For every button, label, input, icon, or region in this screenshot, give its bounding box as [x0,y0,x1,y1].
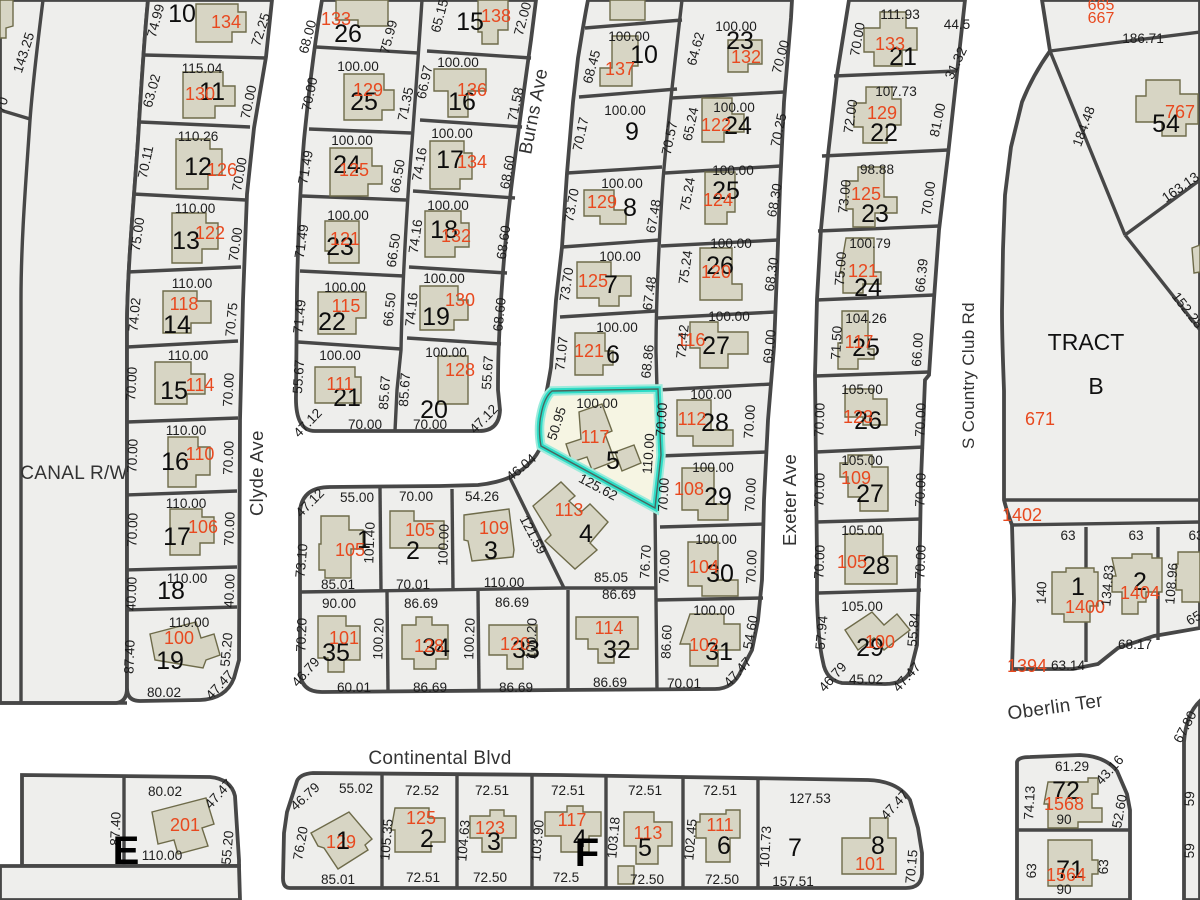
svg-text:7: 7 [788,834,802,862]
svg-text:125: 125 [578,271,608,291]
svg-text:70.00: 70.00 [221,511,237,546]
svg-text:100.00: 100.00 [435,523,451,566]
svg-text:29: 29 [704,483,732,511]
svg-text:100.00: 100.00 [601,176,643,191]
svg-text:110.00: 110.00 [172,276,213,291]
svg-text:70.00: 70.00 [742,477,759,512]
svg-text:136: 136 [457,80,487,100]
svg-text:60.01: 60.01 [337,680,371,695]
svg-text:104.26: 104.26 [845,311,887,326]
svg-text:70.00: 70.00 [912,402,928,437]
svg-text:70.75: 70.75 [223,302,241,337]
svg-text:45.02: 45.02 [849,672,883,687]
svg-text:55.67: 55.67 [479,355,496,390]
svg-text:109: 109 [841,468,871,488]
svg-text:113: 113 [555,500,584,520]
svg-text:70.00: 70.00 [413,417,447,432]
svg-text:59: 59 [1182,791,1198,807]
svg-text:132: 132 [441,226,471,246]
svg-text:10: 10 [168,0,196,28]
svg-text:128: 128 [414,636,444,656]
svg-text:70.00: 70.00 [124,438,140,473]
svg-text:70.00: 70.00 [811,472,827,507]
svg-text:70.00: 70.00 [655,477,672,512]
svg-text:100.00: 100.00 [599,249,641,264]
svg-text:22: 22 [870,119,898,147]
svg-text:118: 118 [170,294,199,314]
svg-text:100.00: 100.00 [425,345,467,360]
svg-text:73.10: 73.10 [293,543,311,579]
svg-text:107.73: 107.73 [875,84,917,99]
svg-text:1394: 1394 [1007,656,1047,676]
svg-text:111.93: 111.93 [880,7,920,22]
svg-text:114: 114 [595,618,624,638]
svg-text:4: 4 [579,520,593,548]
svg-text:Exeter Ave: Exeter Ave [779,454,800,546]
svg-text:117: 117 [581,427,610,447]
svg-text:70.00: 70.00 [912,472,928,507]
svg-text:106: 106 [188,517,218,537]
svg-text:70.01: 70.01 [667,676,701,691]
svg-text:5: 5 [606,447,620,475]
svg-text:128: 128 [445,360,475,380]
svg-text:100.20: 100.20 [370,617,386,660]
svg-text:114: 114 [186,375,215,395]
svg-text:134: 134 [457,152,487,172]
svg-text:55.67: 55.67 [290,359,307,394]
svg-text:74.13: 74.13 [1021,785,1038,820]
svg-text:121: 121 [574,341,604,361]
svg-text:63: 63 [1024,863,1040,879]
svg-text:133: 133 [875,34,905,54]
svg-text:76.70: 76.70 [637,544,654,579]
svg-text:70.00: 70.00 [220,372,237,407]
svg-text:129: 129 [587,192,617,212]
svg-text:105.00: 105.00 [841,599,883,614]
svg-text:55.20: 55.20 [218,632,236,668]
svg-text:117: 117 [845,332,874,352]
svg-text:105: 105 [335,540,365,560]
svg-text:100.00: 100.00 [324,280,366,295]
svg-text:3: 3 [484,537,498,565]
svg-text:110.00: 110.00 [166,496,207,511]
svg-text:100.00: 100.00 [437,55,479,70]
svg-text:57.94: 57.94 [813,615,831,651]
svg-text:40.00: 40.00 [123,576,139,611]
svg-text:72.50: 72.50 [473,870,507,885]
svg-text:70.00: 70.00 [123,366,140,401]
svg-text:61.29: 61.29 [1055,759,1089,774]
svg-text:86.69: 86.69 [602,587,636,602]
svg-text:70.00: 70.00 [399,489,433,504]
svg-text:100.00: 100.00 [427,198,469,213]
svg-text:111: 111 [326,374,353,394]
svg-text:110.00: 110.00 [484,575,525,590]
svg-text:112: 112 [678,409,707,429]
svg-text:3: 3 [487,828,501,856]
svg-text:14: 14 [163,311,191,339]
svg-text:27: 27 [702,332,730,360]
svg-text:1402: 1402 [1002,505,1042,525]
svg-text:70.00: 70.00 [124,512,140,547]
svg-text:102: 102 [689,635,719,655]
svg-text:70.00: 70.00 [811,544,827,579]
svg-text:32: 32 [603,636,631,664]
svg-text:110.00: 110.00 [142,848,183,863]
svg-text:8: 8 [623,194,637,222]
svg-text:108: 108 [674,479,704,499]
svg-text:1568: 1568 [1044,794,1084,814]
svg-text:133: 133 [321,9,351,29]
svg-text:100.00: 100.00 [604,103,646,118]
svg-text:110.00: 110.00 [640,432,658,474]
svg-text:40.00: 40.00 [221,573,237,608]
svg-text:18: 18 [157,577,185,605]
svg-text:70.00: 70.00 [656,549,672,584]
svg-text:667: 667 [1088,10,1115,27]
svg-text:85.01: 85.01 [321,577,355,592]
svg-text:9: 9 [625,118,639,146]
svg-text:120: 120 [701,262,731,282]
svg-text:63: 63 [1060,528,1075,543]
svg-text:70.00: 70.00 [220,440,236,475]
svg-text:1404: 1404 [1120,583,1160,603]
svg-text:63.14: 63.14 [1051,658,1085,673]
svg-text:1: 1 [336,827,350,855]
svg-text:86.69: 86.69 [404,596,438,611]
svg-text:15: 15 [456,8,484,36]
svg-text:100.00: 100.00 [331,133,373,148]
svg-text:CANAL R/W: CANAL R/W [20,463,128,484]
svg-text:E: E [113,829,140,873]
svg-text:70.00: 70.00 [348,417,382,432]
svg-text:100.00: 100.00 [576,396,618,411]
svg-text:100.00: 100.00 [596,320,638,335]
svg-text:100.00: 100.00 [431,126,473,141]
svg-text:55.84: 55.84 [905,612,923,648]
svg-text:100.00: 100.00 [327,208,369,223]
svg-text:201: 201 [170,815,200,835]
svg-text:98.88: 98.88 [860,162,894,177]
svg-text:140: 140 [1034,581,1050,605]
svg-text:124: 124 [703,190,733,210]
svg-text:100: 100 [865,632,895,652]
svg-text:F: F [575,831,599,875]
svg-text:138: 138 [481,6,511,26]
svg-text:B: B [1088,373,1103,399]
svg-text:72.51: 72.51 [628,783,662,798]
svg-text:86.69: 86.69 [495,595,529,610]
svg-text:129: 129 [867,103,897,123]
svg-text:72.51: 72.51 [406,870,440,885]
svg-text:90.00: 90.00 [322,596,356,611]
svg-text:101.73: 101.73 [757,826,774,868]
svg-text:100.00: 100.00 [423,271,465,286]
svg-text:70.00: 70.00 [912,544,928,579]
svg-text:85.05: 85.05 [594,570,628,585]
svg-text:70.01: 70.01 [396,577,430,592]
svg-text:2: 2 [406,537,420,565]
svg-text:110.00: 110.00 [166,423,207,438]
svg-text:85.67: 85.67 [396,372,413,407]
svg-text:130: 130 [445,290,475,310]
svg-text:70.00: 70.00 [743,549,759,584]
svg-text:80.02: 80.02 [148,784,182,799]
svg-text:55.20: 55.20 [219,830,237,866]
svg-text:101.40: 101.40 [361,521,377,564]
svg-text:100.20: 100.20 [461,617,477,660]
svg-text:55.00: 55.00 [340,490,374,505]
svg-text:55.02: 55.02 [339,781,373,796]
svg-text:767: 767 [1165,102,1195,122]
svg-text:105.00: 105.00 [841,523,883,538]
svg-text:86.69: 86.69 [593,675,627,690]
svg-text:80.02: 80.02 [147,685,181,700]
svg-text:72.51: 72.51 [551,783,585,798]
svg-text:105: 105 [405,520,435,540]
svg-text:100.20: 100.20 [523,617,539,660]
svg-text:23: 23 [861,200,889,228]
svg-text:123: 123 [843,407,873,427]
svg-text:121: 121 [848,261,878,281]
svg-text:19: 19 [156,647,184,675]
svg-text:Clyde Ave: Clyde Ave [246,430,267,516]
svg-text:100.00: 100.00 [690,387,732,402]
svg-text:5: 5 [638,834,652,862]
svg-text:72.50: 72.50 [630,872,664,887]
svg-text:122: 122 [701,115,731,135]
svg-text:105: 105 [837,552,867,572]
svg-text:85.67: 85.67 [376,375,393,410]
svg-text:100: 100 [164,628,194,648]
svg-text:44.5: 44.5 [944,17,970,32]
svg-text:110.26: 110.26 [178,129,219,144]
svg-text:66.00: 66.00 [909,332,926,367]
svg-text:100.00: 100.00 [695,532,737,547]
svg-text:70.00: 70.00 [653,402,670,437]
svg-text:72.51: 72.51 [475,783,509,798]
svg-text:87.40: 87.40 [121,639,137,674]
svg-text:671: 671 [1025,409,1055,429]
svg-text:70.20: 70.20 [293,617,309,652]
svg-text:109: 109 [479,518,509,538]
svg-text:6: 6 [606,341,620,369]
svg-text:132: 132 [731,47,761,67]
svg-text:130: 130 [185,84,215,104]
svg-text:72.50: 72.50 [705,872,739,887]
svg-text:59: 59 [1182,843,1198,859]
svg-text:S Country Club Rd: S Country Club Rd [959,302,978,449]
svg-text:17: 17 [163,523,191,551]
svg-text:121: 121 [330,229,360,249]
svg-text:127.53: 127.53 [789,791,831,806]
svg-text:134: 134 [211,12,241,32]
svg-text:129: 129 [353,80,383,100]
svg-text:85.01: 85.01 [321,872,355,887]
svg-text:100.00: 100.00 [708,309,750,324]
svg-text:122: 122 [195,223,225,243]
svg-text:70.15: 70.15 [903,849,921,884]
svg-text:100.00: 100.00 [693,603,735,618]
svg-text:70.00: 70.00 [741,404,758,439]
svg-text:63: 63 [1188,528,1200,543]
svg-text:125: 125 [339,160,369,180]
svg-text:70.00: 70.00 [811,402,827,437]
svg-text:63: 63 [1096,859,1112,875]
svg-text:186.71: 186.71 [1122,31,1164,46]
svg-text:15: 15 [160,377,188,405]
svg-text:100.00: 100.00 [692,460,734,475]
svg-text:54.26: 54.26 [465,489,499,504]
svg-text:72.52: 72.52 [405,783,439,798]
svg-text:137: 137 [605,59,635,79]
svg-text:105.00: 105.00 [841,382,883,397]
svg-text:74.02: 74.02 [126,297,144,332]
svg-text:TRACT: TRACT [1048,329,1125,355]
svg-text:157.51: 157.51 [772,874,814,889]
svg-text:101: 101 [855,854,885,874]
svg-text:6: 6 [717,832,731,860]
svg-text:101: 101 [329,628,359,648]
svg-text:100.00: 100.00 [337,59,379,74]
svg-text:90: 90 [1056,812,1072,827]
svg-text:115: 115 [332,296,361,316]
svg-text:86.69: 86.69 [499,680,533,695]
svg-text:125: 125 [851,184,881,204]
svg-text:100.00: 100.00 [319,348,361,363]
svg-text:2: 2 [420,825,434,853]
svg-text:110.00: 110.00 [168,348,209,363]
svg-text:110: 110 [186,444,215,464]
svg-text:63: 63 [1128,528,1143,543]
svg-text:Continental Blvd: Continental Blvd [368,748,511,769]
svg-text:72.51: 72.51 [703,783,737,798]
svg-text:75.00: 75.00 [832,251,849,286]
svg-text:110.00: 110.00 [175,201,216,216]
svg-text:105.00: 105.00 [841,453,883,468]
svg-text:100.00: 100.00 [712,163,754,178]
svg-text:90: 90 [1056,882,1072,897]
svg-text:100.00: 100.00 [710,236,752,251]
svg-text:71.50: 71.50 [828,325,845,360]
svg-text:86.60: 86.60 [658,624,674,659]
svg-text:68.17: 68.17 [1118,637,1152,652]
svg-text:115.04: 115.04 [182,61,223,76]
svg-text:100.79: 100.79 [849,236,891,251]
svg-text:86.69: 86.69 [413,680,447,695]
svg-text:104: 104 [689,557,719,577]
